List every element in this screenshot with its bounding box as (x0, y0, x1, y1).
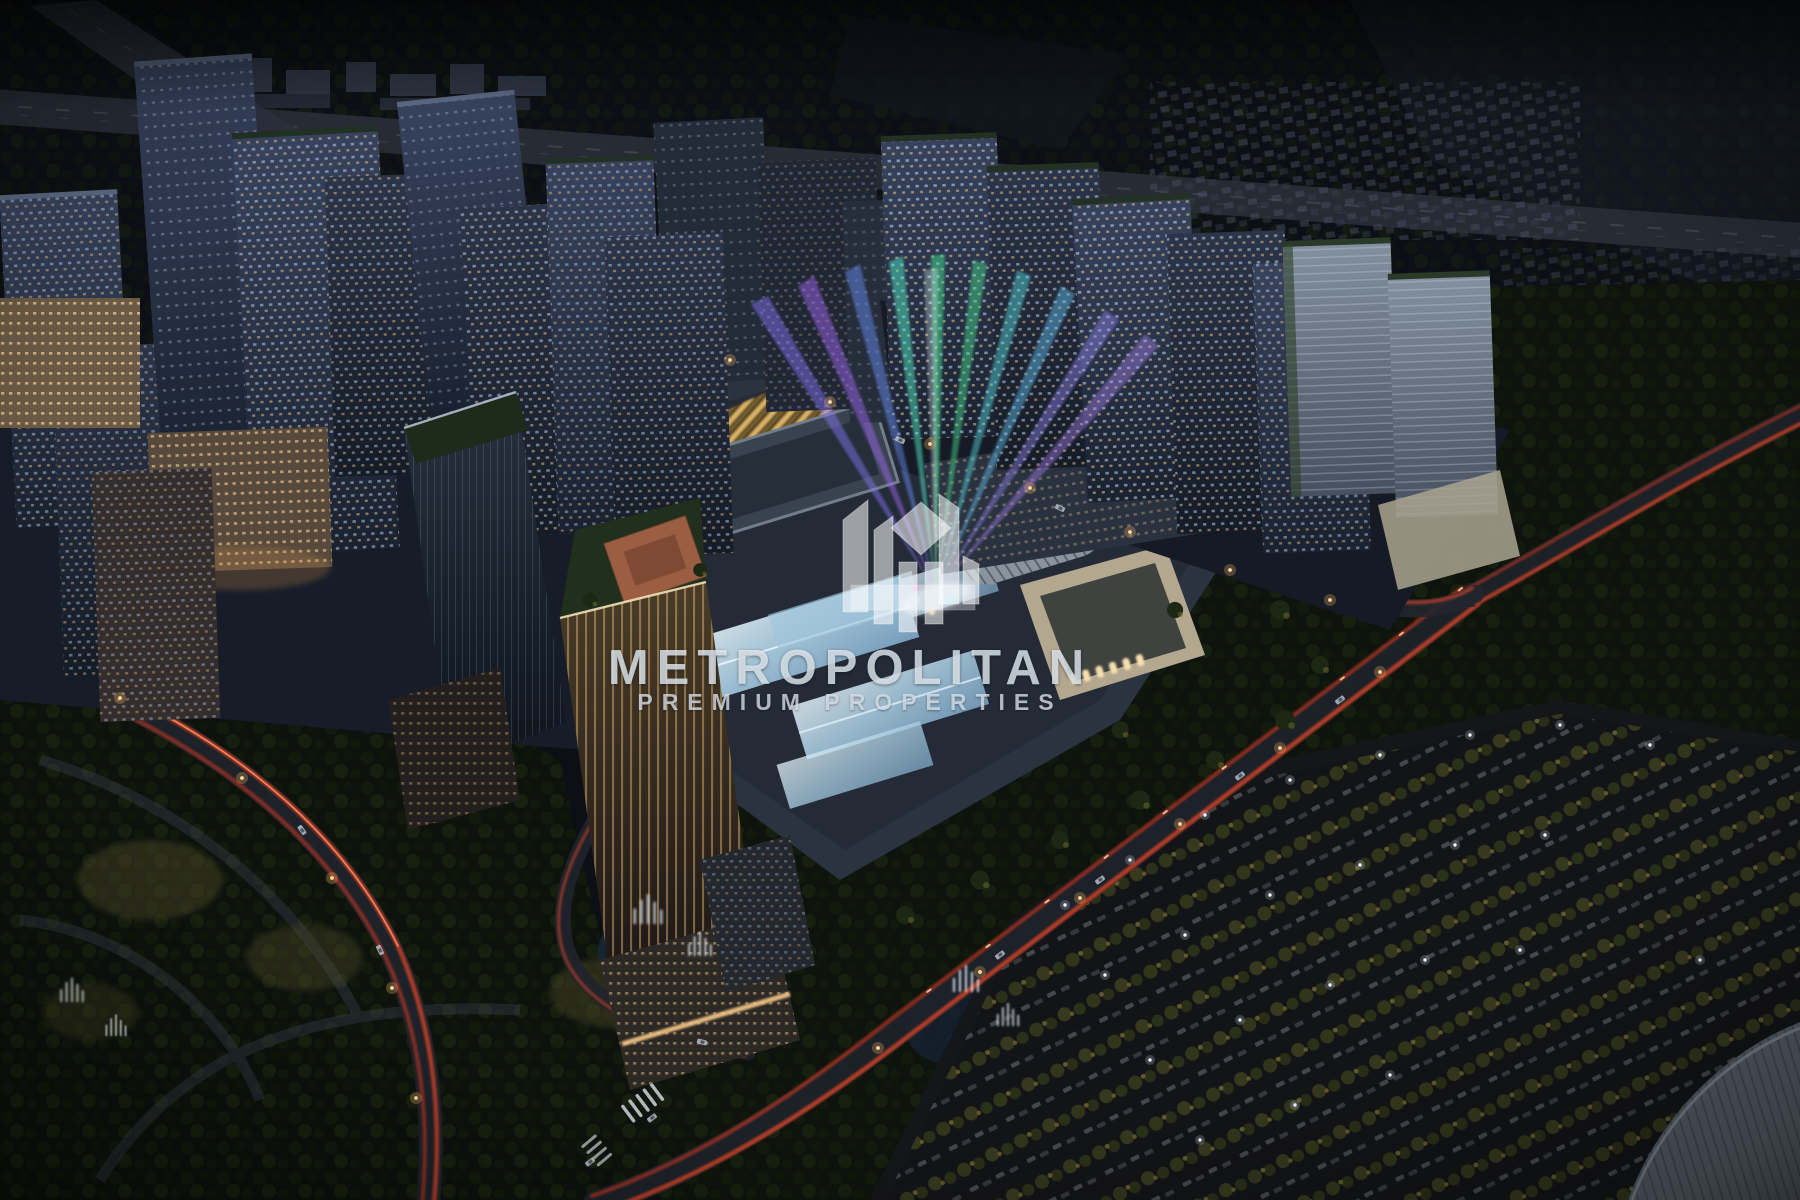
vignette (0, 0, 1800, 1200)
top-shade (0, 0, 1800, 110)
city-render-scene (0, 0, 1800, 1200)
aerial-city-render: METROPOLITAN PREMIUM PROPERTIES (0, 0, 1800, 1200)
